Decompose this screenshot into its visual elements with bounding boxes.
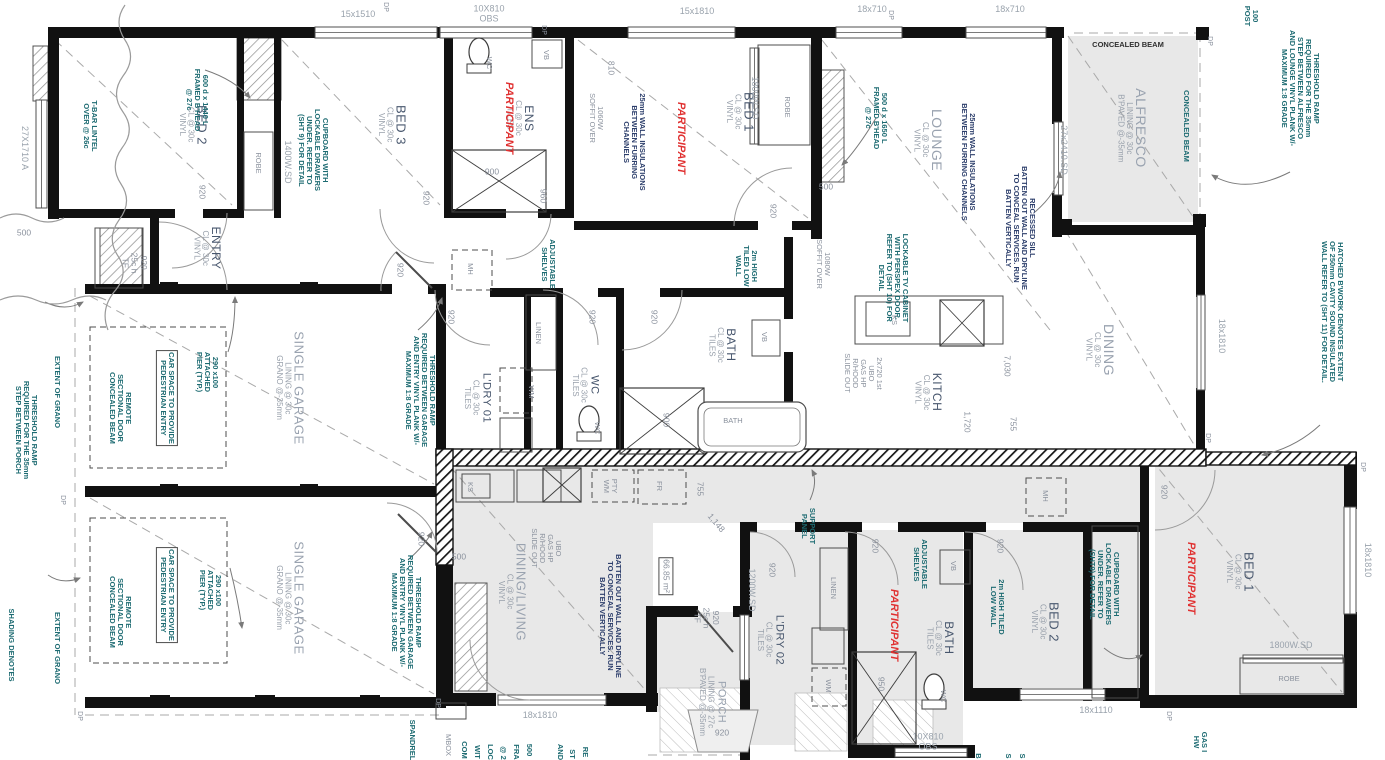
room-finish-notes: LINING @ 30c GRANO @-35mm: [274, 541, 291, 654]
plan-note: 1060W SOFFIT OVER: [588, 93, 604, 143]
room-label-bath-upper: BATHCL @ 30c TILES: [707, 327, 737, 362]
downpipe-label: DP: [75, 711, 83, 721]
plan-note: SUPPORT PANEL: [800, 508, 816, 544]
room-label-lounge: LOUNGECL @ 30c VINYL: [912, 109, 944, 171]
dimension-label: 1,720: [962, 411, 971, 432]
plan-note: GAS I HW: [1192, 732, 1208, 752]
dimension-label: 920: [767, 563, 776, 577]
edge-fragment: LOC: [486, 744, 494, 760]
room-label-entry: ENTRYCL @ 30c VINYL: [192, 227, 222, 270]
plan-note: CUPBOARD WITH LOCKABLE DRAWERS UNDER. RE…: [297, 109, 329, 191]
room-name: BED 2: [195, 105, 209, 145]
room-finish-notes: CL @ 30c TILES: [755, 615, 772, 665]
dimension-label: 950: [876, 677, 885, 691]
window-size-label: 18x1810: [1362, 543, 1372, 578]
room-name: DINING: [1101, 324, 1116, 376]
window-size-label: 10X810 OBS: [473, 4, 504, 23]
floor-plan-labels: BED 2CL @ 30c VINYLBED 3CL @ 30c VINYLEN…: [0, 0, 1385, 760]
fixture-label-pty-wm: PTY WM: [602, 479, 618, 494]
dimension-label: 920: [870, 539, 879, 553]
room-label-garage-2: SINGLE GARAGELINING @ 30c GRANO @-35mm: [274, 541, 305, 654]
room-label-dining-living: DINING/LIVINGCL @ 30c VINYL: [496, 543, 527, 641]
dimension-label: 920: [768, 204, 777, 218]
room-finish-notes: CL @ 30c VINYL: [177, 105, 194, 145]
room-finish-notes: CL @ 30c VINYL: [912, 109, 929, 171]
room-finish-notes: LINING @ 30c B'PAVED @-35mm: [1116, 88, 1133, 167]
window-size-label: 27X1710 A: [19, 126, 29, 170]
room-name: ENS: [522, 100, 535, 135]
room-finish-notes: CL @ 30c VINYL: [496, 543, 513, 641]
edge-fragment: 500: [525, 744, 533, 757]
room-name: BATH: [942, 620, 955, 655]
plan-note: RECESSED SILL BATTEN OUT WALL AND DRYLIN…: [1004, 166, 1036, 290]
dimension-label: 920: [421, 191, 430, 205]
room-label-porch: PORCHLINING @ 27c B'PAVED @-35mm: [697, 668, 726, 736]
dimension-label: 900: [661, 413, 670, 427]
window-size-label: 18x1810: [523, 711, 558, 721]
plan-note: CAR SPACE TO PROVIDE PEDESTRIAN ENTRY: [156, 547, 178, 643]
edge-fragment: S: [1004, 753, 1012, 758]
downpipe-label: DP: [1358, 462, 1366, 472]
fixture-label-wc: WC: [939, 690, 947, 703]
plan-note: 2m HIGH TILED LOW WALL: [734, 245, 758, 286]
edge-fragment: @ 2: [499, 746, 507, 760]
downpipe-label: DP: [539, 25, 547, 35]
edge-fragment: SPANDREL: [408, 720, 416, 760]
room-finish-notes: CL @ 30c VINYL: [913, 373, 930, 412]
fixture-label-bath: BATH: [723, 417, 742, 425]
fixture-label-mh: MH: [466, 263, 474, 275]
dimension-label: 500: [452, 552, 466, 561]
dimension-label: 500: [17, 228, 31, 237]
window-size-label: 1200W.SD: [746, 568, 756, 611]
room-name: KITCH: [930, 373, 943, 412]
fixture-label-ks: KS: [466, 482, 474, 492]
room-finish-notes: CL @ 30c TILES: [925, 620, 942, 655]
room-name: BED 2: [1047, 602, 1061, 642]
room-label-ldry-02: L'DRY 02CL @ 30c TILES: [755, 615, 784, 665]
room-label-bath-lower: BATHCL @ 30c TILES: [925, 620, 955, 655]
room-name: BED 1: [1242, 552, 1256, 592]
downpipe-label: DP: [1164, 711, 1172, 721]
participant-tag: PARTICIPANT: [1184, 542, 1196, 614]
room-label-wc-upper: WCCL @ 30c TILES: [570, 367, 599, 402]
dimension-label: 810: [606, 61, 615, 75]
dimension-label: 66.85 m²: [658, 557, 673, 595]
dimension-label: 920: [197, 185, 206, 199]
dimension-label: 920: [416, 532, 425, 546]
plan-note: 600 d x 1440 L FRAMED B'HEAD @ 27c: [185, 69, 209, 132]
room-label-bed1-lower: BED 1CL @ 30c VINYL: [1224, 552, 1255, 592]
plan-note: CUPBOARD WITH LOCKABLE DRAWERS UNDER. RE…: [1088, 543, 1120, 625]
room-label-bed2-upper: BED 2CL @ 30c VINYL: [177, 105, 208, 145]
plan-note: SHADING DENOTES: [7, 609, 15, 682]
window-size-label: 1800W.SD: [1269, 641, 1312, 651]
room-label-bed2-lower: BED 2CL @ 30c VINYL: [1029, 602, 1060, 642]
room-label-dining-upper: DININGCL @ 30c VINYL: [1084, 324, 1116, 376]
edge-fragment: FRA: [512, 744, 520, 759]
plan-note: 100 POST: [1243, 6, 1259, 26]
dimension-label: 755: [1008, 417, 1017, 431]
dimension-label: 755: [695, 482, 704, 496]
room-finish-notes: CL @ 30c VINYL: [1029, 602, 1046, 642]
dimension-label: 920: [995, 539, 1004, 553]
plan-note: CAR SPACE TO PROVIDE PEDESTRIAN ENTRY: [156, 350, 178, 446]
downpipe-label: DP: [1203, 433, 1211, 443]
plan-note: 290 x100 ATTACHED PIER (TYP.): [195, 352, 219, 392]
fixture-label-robe: ROBE: [783, 96, 791, 117]
dimension-label: 920: [1159, 485, 1168, 499]
plan-note: EXTENT OF GRANO: [53, 356, 61, 428]
fixture-label-wm: WM: [824, 679, 832, 692]
plan-note: 25mm WALL INSULATIONS BETWEEN FURRING CH…: [960, 103, 976, 221]
room-finish-notes: LINING @ 27c B'PAVED @-35mm: [697, 668, 714, 736]
room-name: ENTRY: [209, 227, 222, 270]
dimension-label: 920 25c h TF: [692, 608, 720, 629]
dimension-label: 7,030: [1002, 355, 1011, 376]
dimension-label: 500: [819, 182, 833, 191]
plan-note: 2x720 1st UBO GAS HP R/HOOD SLIDE OUT: [843, 353, 883, 393]
room-finish-notes: CL @ 30c VINYL: [1084, 324, 1101, 376]
floor-plan-canvas: BED 2CL @ 30c VINYLBED 3CL @ 30c VINYLEN…: [0, 0, 1385, 760]
dimension-label: 920: [715, 728, 729, 737]
dimension-label: 920: [395, 263, 404, 277]
fixture-label-robe: ROBE: [254, 152, 262, 173]
room-finish-notes: CL @ 30c VINYL: [376, 105, 393, 145]
room-name: BATH: [724, 327, 737, 362]
fixture-label-linen: LINEN: [829, 577, 837, 599]
plan-note: THRESHOLD RAMP REQUIRED FOR THE 35mm STE…: [1280, 30, 1320, 146]
room-finish-notes: CL @ 30c VINYL: [724, 92, 741, 132]
room-name: BED 1: [742, 92, 756, 132]
plan-note: T-BAR LINTEL OVER @ 26c: [82, 100, 98, 151]
room-name: BED 3: [394, 105, 408, 145]
window-size-label: 18x710: [857, 5, 887, 15]
window-size-label: 18x1110: [1079, 706, 1112, 716]
window-size-label: 15x1510: [341, 10, 376, 20]
edge-fragment: S: [1018, 753, 1026, 758]
plan-note: ADJUSTABLE SHELVES: [540, 239, 556, 289]
plan-note: 500 d x 1650 L FRAMED B'HEAD @ 27c: [864, 87, 888, 150]
fixture-label-fr: FR: [655, 481, 663, 491]
plan-note: THRESHOLD RAMP REQUIRED FOR THE 35mm STE…: [14, 381, 38, 479]
plan-note: HATCHED B'WORK DENOTES EXTENT OF 250mm C…: [1320, 241, 1344, 383]
dimension-label: 920: [587, 310, 596, 324]
plan-note: EXTENT OF GRANO: [53, 612, 61, 684]
fixture-label-robe: ROBE: [1278, 675, 1299, 683]
room-name: PORCH: [715, 668, 727, 736]
dimension-label: 920 25c h TF: [120, 253, 148, 274]
downpipe-label: DP: [433, 698, 441, 708]
room-label-bed3-upper: BED 3CL @ 30c VINYL: [376, 105, 407, 145]
edge-fragment: RE: [581, 747, 589, 757]
plan-note: CONCEALED BEAM: [1092, 41, 1164, 49]
room-label-ens: ENSCL @ 30c TILES: [505, 100, 535, 135]
plan-note: THRESHOLD RAMP REQUIRED BETWEEN GARAGE A…: [390, 555, 422, 669]
fixture-label-wc: WC: [593, 422, 601, 435]
room-name: ALFRESCO: [1133, 88, 1148, 167]
fixture-label-vb: VB: [949, 561, 957, 571]
room-finish-notes: CL @ 30c TILES: [505, 100, 522, 135]
dimension-label: 900: [485, 167, 499, 176]
room-finish-notes: LINING @ 30c GRANO @-35mm: [274, 331, 291, 444]
window-size-label: 10X810 OBS: [912, 732, 943, 751]
room-name: WC: [588, 367, 600, 402]
room-name: SINGLE GARAGE: [292, 331, 306, 444]
room-finish-notes: CL @ 30c TILES: [462, 373, 479, 423]
plan-note: REMOTE SECTIONAL DOOR CONCEALED BEAM: [108, 576, 132, 648]
plan-note: CONCEALED BEAM: [1182, 90, 1190, 162]
plan-note: 1080W SOFFIT OVER: [815, 239, 831, 289]
room-finish-notes: CL @ 30c VINYL: [192, 227, 209, 270]
window-size-label: 15x1810: [680, 7, 715, 17]
room-finish-notes: CL @ 30c TILES: [707, 327, 724, 362]
window-size-label: 1800W.SD: [749, 76, 759, 119]
fixture-label-vb: VB: [542, 50, 550, 60]
edge-fragment: ST: [568, 749, 576, 759]
room-name: L'DRY 01: [480, 373, 492, 423]
room-label-alfresco: ALFRESCOLINING @ 30c B'PAVED @-35mm: [1116, 88, 1148, 167]
dimension-label: 960: [538, 189, 547, 203]
fixture-label-linen: LINEN: [534, 322, 542, 344]
plan-note: REMOTE SECTIONAL DOOR CONCEALED BEAM: [108, 372, 132, 444]
room-finish-notes: CL @ 30c VINYL: [1224, 552, 1241, 592]
room-label-kitch: KITCHCL @ 30c VINYL: [913, 373, 943, 412]
downpipe-label: DP: [1205, 36, 1213, 46]
window-size-label: 18x710: [995, 5, 1025, 15]
fixture-label-ks: KS: [890, 315, 898, 325]
plan-note: BATTEN OUT WALL AND DRYLINE TO CONCEAL S…: [598, 554, 622, 678]
room-name: DINING/LIVING: [514, 543, 528, 641]
edge-fragment: WIT: [473, 745, 481, 759]
participant-tag: PARTICIPANT: [887, 589, 899, 661]
edge-fragment: B: [974, 753, 982, 758]
edge-fragment: COM: [460, 741, 468, 759]
downpipe-label: DP: [381, 2, 389, 12]
plan-note: 290 x100 ATTACHED PIER (TYP.): [198, 570, 222, 610]
participant-tag: PARTICIPANT: [674, 102, 686, 174]
room-name: LOUNGE: [929, 109, 944, 171]
fixture-label-wm: WM: [527, 385, 535, 398]
fixture-label-mbox: MBOX: [444, 734, 452, 756]
dimension-label: 920: [649, 310, 658, 324]
window-size-label: 27x2410.SD: [1058, 125, 1068, 175]
downpipe-label: DP: [886, 10, 894, 20]
dimension-label: 920: [446, 310, 455, 324]
fixture-label-vb: VB: [760, 332, 768, 342]
room-label-ldry-01: L'DRY 01CL @ 30c TILES: [462, 373, 491, 423]
edge-fragment: AND: [556, 744, 564, 760]
fixture-label-wc: WC: [485, 57, 493, 70]
window-size-label: 18x1810: [1216, 319, 1226, 354]
plan-note: THRESHOLD RAMP REQUIRED BETWEEN GARAGE A…: [404, 333, 436, 447]
dimension-label: 1,148: [706, 512, 727, 534]
participant-tag: PARTICIPANT: [502, 82, 514, 154]
plan-note: 25mm WALL INSULATIONS BETWEEN FURRING CH…: [622, 93, 646, 190]
plan-note: ADJUSTABLE SHELVES: [912, 539, 928, 589]
room-label-bed1-upper: BED 1CL @ 30c VINYL: [724, 92, 755, 132]
room-label-garage-1: SINGLE GARAGELINING @ 30c GRANO @-35mm: [274, 331, 305, 444]
fixture-label-mh: MH: [1041, 490, 1049, 502]
plan-note: 2m HIGH TILED LOW WALL: [989, 579, 1005, 634]
room-name: L'DRY 02: [773, 615, 785, 665]
plan-note: UBO GAS HP R/HOOD SLIDE OUT: [530, 528, 562, 568]
downpipe-label: DP: [58, 495, 66, 505]
room-name: SINGLE GARAGE: [292, 541, 306, 654]
plan-note: LOCKABLE TV CABINET WITH PERSPEX DOOR. R…: [877, 234, 909, 323]
room-finish-notes: CL @ 30c TILES: [570, 367, 587, 402]
window-size-label: 1400W.SD: [282, 140, 292, 183]
